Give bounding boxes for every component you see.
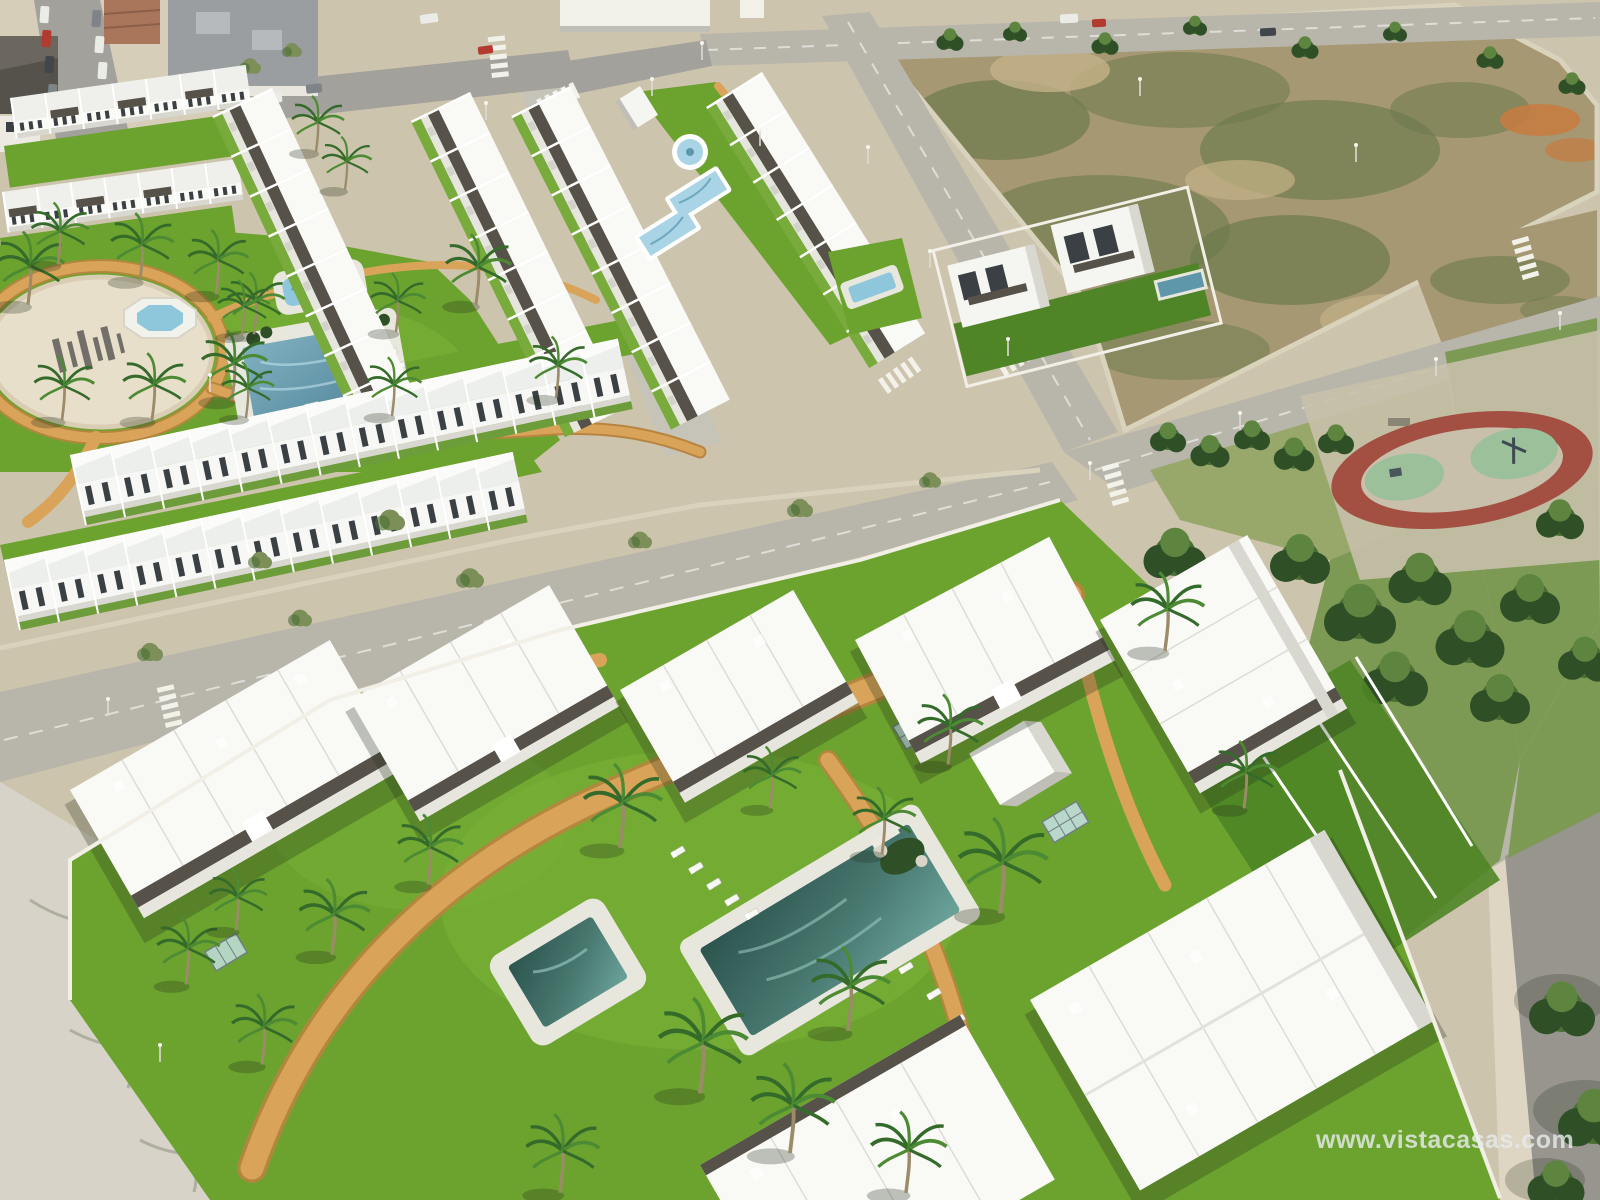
bench bbox=[1388, 418, 1410, 426]
round-fountain bbox=[672, 134, 708, 170]
octagon-spa bbox=[124, 298, 196, 338]
watermark: www.vistacasas.com bbox=[1315, 1126, 1574, 1154]
aerial-render-image: Aerial 3D architectural render of a new-… bbox=[0, 0, 1600, 1200]
development-aerial-scene: Aerial 3D architectural render of a new-… bbox=[0, 0, 1600, 1200]
